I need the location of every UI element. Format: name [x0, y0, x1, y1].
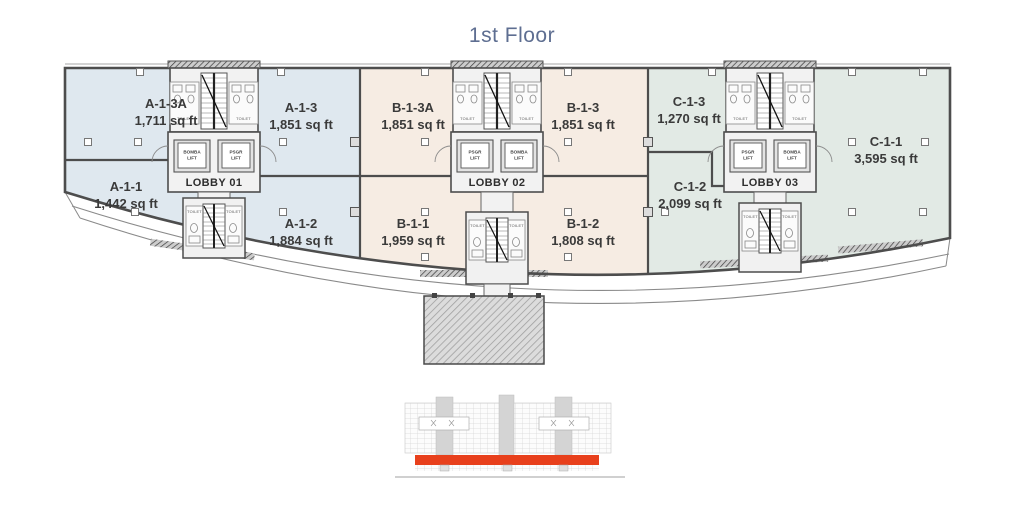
lift-label: PSGR [741, 150, 755, 155]
unit-area: 3,595 sq ft [854, 151, 918, 166]
toilet-label: TOILET [733, 116, 748, 121]
core-b-roof-hatch [451, 61, 543, 68]
lobby-label: LOBBY 02 [469, 177, 526, 189]
unit-area: 2,099 sq ft [658, 196, 722, 211]
toilet-label: TOILET [236, 116, 251, 121]
unit-area: 1,711 sq ft [135, 113, 199, 128]
unit-id: A-1-3 [285, 100, 318, 115]
unit-area: 1,959 sq ft [381, 233, 445, 248]
lift-label: PSGR [229, 150, 243, 155]
unit-area: 1,851 sq ft [551, 117, 615, 132]
unit-area: 1,851 sq ft [381, 117, 445, 132]
unit-id: B-1-2 [567, 216, 600, 231]
level-callout [539, 417, 589, 430]
unit-area: 1,884 sq ft [269, 233, 333, 248]
lift-label: LIFT [231, 156, 241, 161]
unit-id: C-1-3 [673, 94, 706, 109]
toilet-label: TOILET [792, 116, 807, 121]
level-callout [419, 417, 469, 430]
stair-icon [484, 73, 510, 129]
unit-id: C-1-1 [870, 134, 903, 149]
stair-icon [486, 218, 508, 262]
lobby-label: LOBBY 01 [186, 177, 243, 189]
entrance-canopy [424, 293, 544, 364]
toilet-label: TOILET [470, 223, 485, 228]
stair-icon [757, 73, 783, 129]
lift-label: BOMBA [510, 150, 528, 155]
unit-area: 1,442 sq ft [94, 196, 158, 211]
toilet-label: TOILET [743, 214, 758, 219]
toilet-label: TOILET [226, 209, 241, 214]
lift-label: LIFT [514, 156, 524, 161]
unit-id: C-1-2 [674, 179, 707, 194]
floor-plan: TOILET TOILET BOMBA LIFT PSGR LIFT LOBBY… [0, 0, 1024, 512]
unit-id: A-1-3A [145, 96, 188, 111]
lift-label: BOMBA [183, 150, 201, 155]
unit-area: 1,808 sq ft [551, 233, 615, 248]
toilet-label: TOILET [509, 223, 524, 228]
key-elevation [395, 395, 625, 477]
unit-id: A-1-1 [110, 179, 143, 194]
toilet-label: TOILET [460, 116, 475, 121]
lift-label: LIFT [787, 156, 797, 161]
lobby-label: LOBBY 03 [742, 177, 799, 189]
unit-area: 1,270 sq ft [657, 111, 721, 126]
highlighted-floor-band [415, 455, 599, 465]
core-c-roof-hatch [724, 61, 816, 68]
stair-icon [201, 73, 227, 129]
floor-plan-page: 1st Floor [0, 0, 1024, 512]
lift-label: LIFT [743, 156, 753, 161]
lift-label: LIFT [470, 156, 480, 161]
unit-id: B-1-3A [392, 100, 435, 115]
toilet-label: TOILET [187, 209, 202, 214]
lift-label: PSGR [468, 150, 482, 155]
lift-label: LIFT [187, 156, 197, 161]
stair-icon [759, 209, 781, 253]
unit-id: B-1-1 [397, 216, 430, 231]
lift-label: BOMBA [783, 150, 801, 155]
toilet-label: TOILET [782, 214, 797, 219]
tower [499, 395, 514, 457]
unit-area: 1,851 sq ft [269, 117, 333, 132]
toilet-label: TOILET [519, 116, 534, 121]
stair-icon [203, 204, 225, 248]
core-a-roof-hatch [168, 61, 260, 68]
unit-id: B-1-3 [567, 100, 600, 115]
unit-id: A-1-2 [285, 216, 318, 231]
